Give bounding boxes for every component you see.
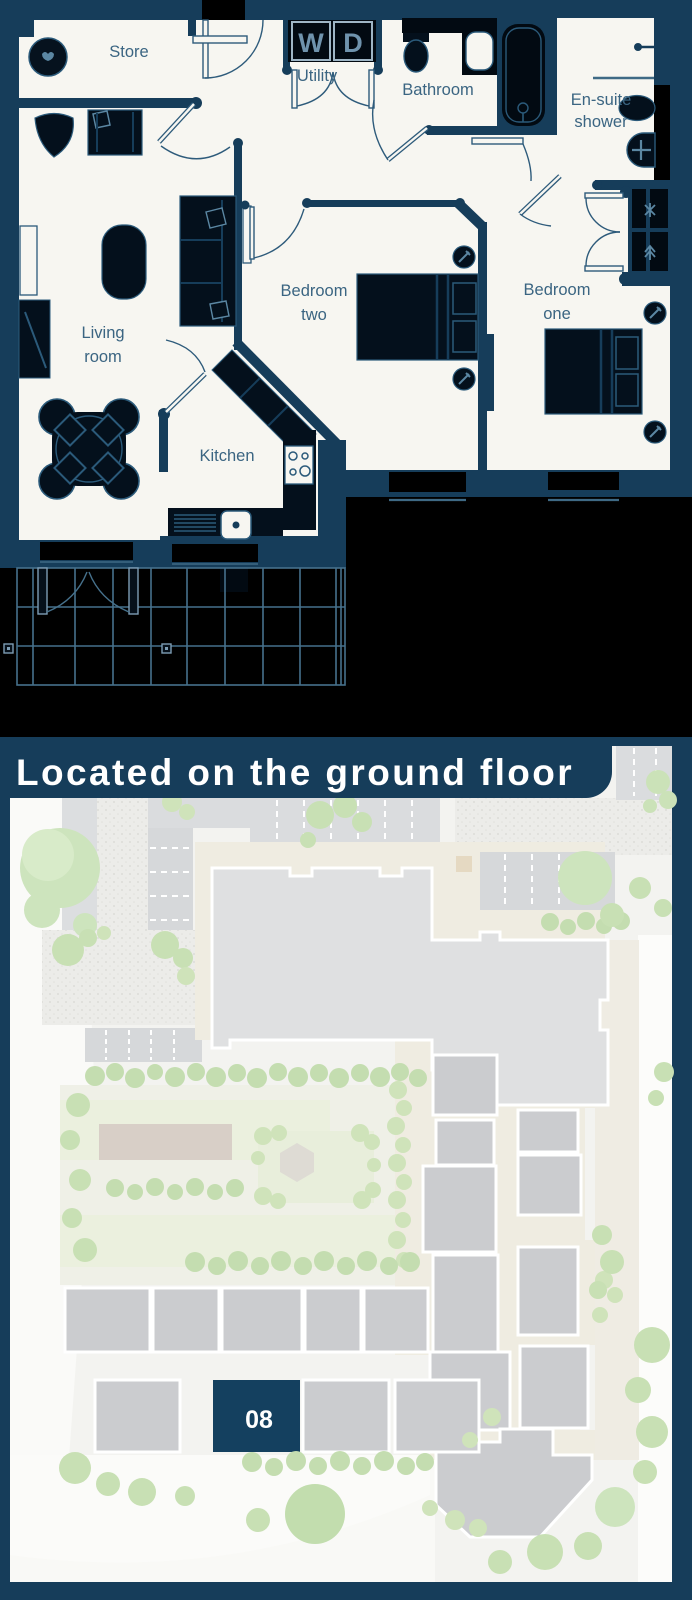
svg-text:one: one (543, 305, 571, 323)
svg-text:two: two (301, 306, 327, 324)
svg-text:Living: Living (81, 324, 124, 342)
svg-text:08: 08 (245, 1406, 273, 1434)
svg-text:Bedroom: Bedroom (281, 282, 348, 300)
svg-text:Located on the ground floor: Located on the ground floor (16, 752, 574, 793)
svg-text:En-suite: En-suite (571, 91, 632, 109)
svg-text:D: D (343, 28, 363, 58)
svg-text:W: W (298, 28, 324, 58)
svg-text:shower: shower (574, 113, 628, 131)
svg-text:room: room (84, 348, 122, 366)
svg-text:Bathroom: Bathroom (402, 81, 474, 99)
svg-text:Kitchen: Kitchen (199, 447, 254, 465)
svg-text:Utility: Utility (297, 67, 338, 85)
svg-text:Bedroom: Bedroom (524, 281, 591, 299)
svg-text:Store: Store (109, 43, 148, 61)
